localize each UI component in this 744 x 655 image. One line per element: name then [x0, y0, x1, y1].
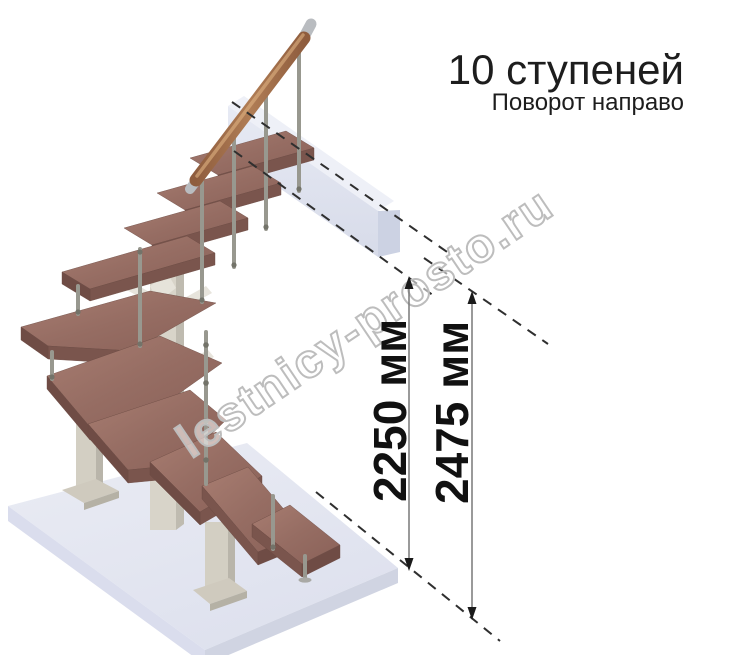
header: 10 ступеней Поворот направо — [448, 46, 684, 116]
connector-knob — [203, 380, 209, 386]
page-title: 10 ступеней — [448, 46, 684, 93]
connector-knob — [270, 544, 275, 549]
dimension-label-2250: 2250 мм — [364, 319, 416, 502]
leg-base-flange — [299, 577, 312, 582]
connector-knob — [263, 224, 268, 229]
connector-knob — [137, 341, 142, 346]
tread-top — [21, 291, 216, 351]
connector-knob — [231, 262, 236, 267]
dimension-label-2475: 2475 мм — [426, 321, 478, 504]
connector-knob — [49, 374, 54, 379]
connector-knob — [75, 309, 80, 314]
connector-knob — [137, 249, 142, 254]
arrowhead-down — [468, 607, 477, 620]
connector-knob — [203, 342, 209, 348]
page-subtitle: Поворот направо — [492, 89, 684, 116]
staircase-diagram: lestnicy-prosto.ru 2250 мм 2475 мм 10 ст… — [0, 0, 744, 655]
connector-knob — [199, 297, 204, 302]
connector-knob — [296, 186, 301, 191]
diagram-canvas: lestnicy-prosto.ru 2250 мм 2475 мм 10 ст… — [0, 0, 744, 655]
